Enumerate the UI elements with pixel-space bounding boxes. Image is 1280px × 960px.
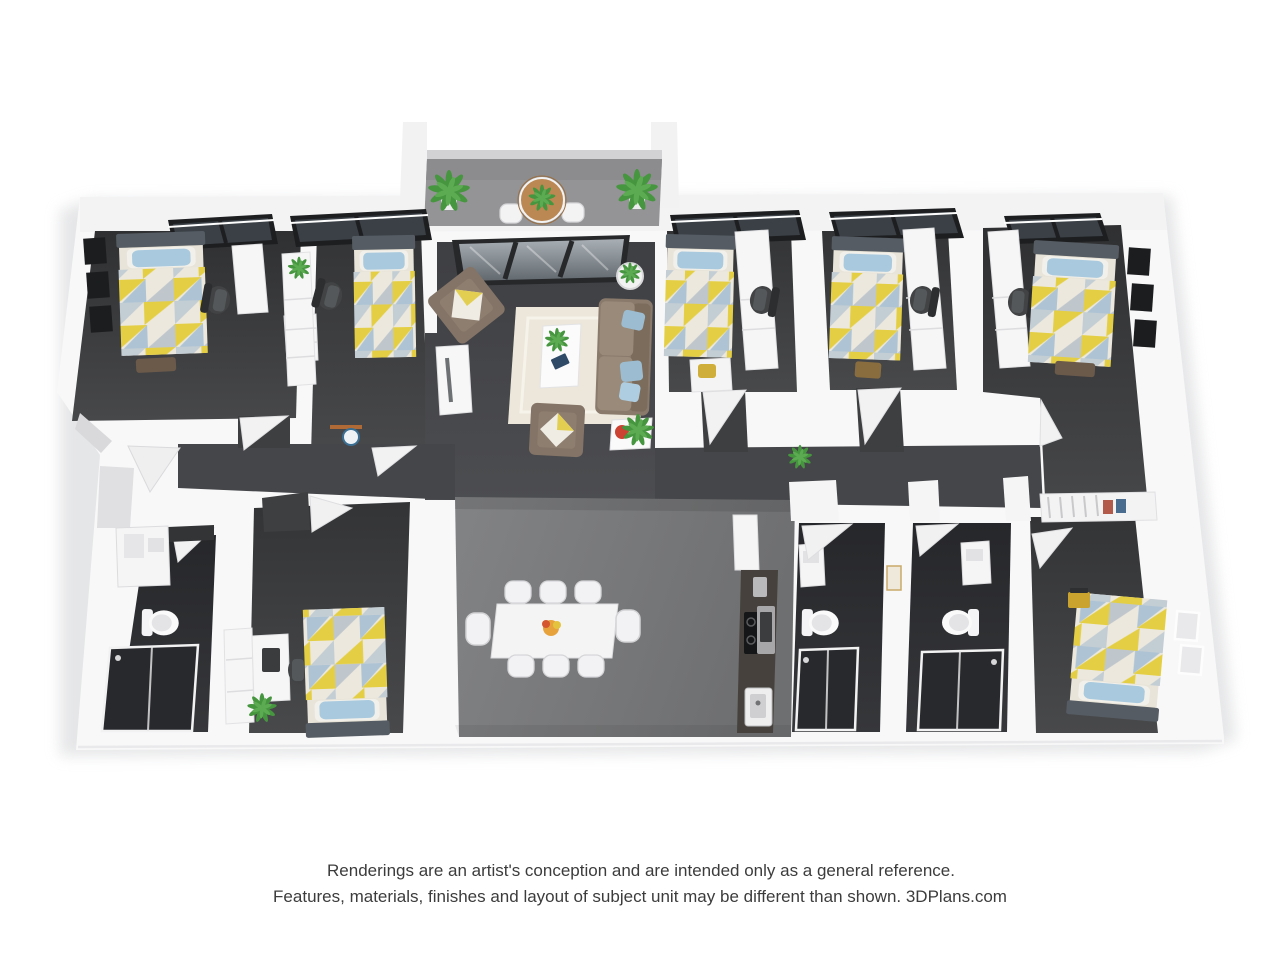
svg-text:Features, materials, finishes: Features, materials, finishes and layout… <box>273 887 1007 906</box>
svg-text:Renderings are an artist's con: Renderings are an artist's conception an… <box>327 861 955 880</box>
